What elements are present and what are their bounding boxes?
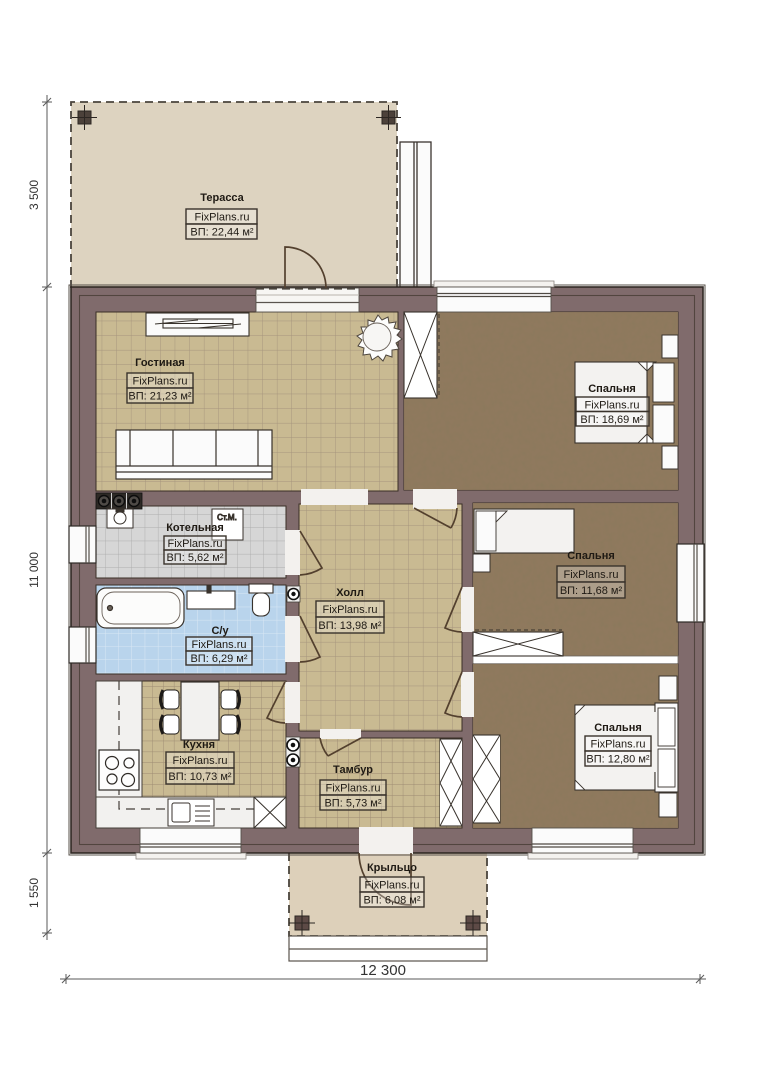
svg-text:12 300: 12 300	[360, 962, 406, 979]
svg-text:FixPlans.ru: FixPlans.ru	[194, 212, 249, 224]
svg-text:ВП: 21,23 м²: ВП: 21,23 м²	[128, 391, 192, 403]
svg-text:ВП: 6,29 м²: ВП: 6,29 м²	[190, 653, 247, 665]
svg-text:Спальня: Спальня	[594, 722, 642, 734]
svg-text:1 550: 1 550	[27, 878, 41, 908]
svg-text:FixPlans.ru: FixPlans.ru	[132, 376, 187, 388]
svg-text:ВП: 6,08 м²: ВП: 6,08 м²	[363, 895, 420, 907]
svg-text:ВП: 11,68 м²: ВП: 11,68 м²	[560, 585, 623, 597]
svg-text:ВП: 18,69 м²: ВП: 18,69 м²	[580, 414, 644, 426]
svg-text:Терасса: Терасса	[200, 192, 244, 204]
svg-text:ВП: 13,98 м²: ВП: 13,98 м²	[318, 620, 382, 632]
svg-text:FixPlans.ru: FixPlans.ru	[590, 739, 645, 751]
svg-text:ВП: 12,80 м²: ВП: 12,80 м²	[586, 754, 650, 766]
svg-text:Тамбур: Тамбур	[333, 764, 373, 776]
svg-text:Спальня: Спальня	[588, 383, 636, 395]
svg-text:Крыльцо: Крыльцо	[367, 862, 417, 874]
svg-text:Спальня: Спальня	[567, 550, 615, 562]
svg-text:С/у: С/у	[211, 625, 229, 637]
svg-text:FixPlans.ru: FixPlans.ru	[325, 783, 380, 795]
svg-text:Ст.М.: Ст.М.	[217, 513, 237, 522]
svg-text:FixPlans.ru: FixPlans.ru	[364, 880, 419, 892]
svg-text:Гостиная: Гостиная	[135, 357, 185, 369]
svg-text:FixPlans.ru: FixPlans.ru	[172, 755, 227, 767]
svg-text:FixPlans.ru: FixPlans.ru	[322, 604, 377, 616]
svg-text:Котельная: Котельная	[166, 522, 224, 534]
svg-text:FixPlans.ru: FixPlans.ru	[191, 639, 246, 651]
svg-text:11 000: 11 000	[27, 552, 41, 588]
svg-text:ВП: 22,44 м²: ВП: 22,44 м²	[190, 227, 254, 239]
svg-text:3 500: 3 500	[27, 180, 41, 210]
svg-text:ВП: 5,73 м²: ВП: 5,73 м²	[324, 798, 381, 810]
svg-text:FixPlans.ru: FixPlans.ru	[563, 569, 618, 581]
svg-text:FixPlans.ru: FixPlans.ru	[167, 538, 222, 550]
svg-text:FixPlans.ru: FixPlans.ru	[584, 400, 639, 412]
svg-text:ВП: 5,62 м²: ВП: 5,62 м²	[166, 552, 223, 564]
svg-text:ВП: 10,73 м²: ВП: 10,73 м²	[168, 771, 232, 783]
svg-text:Кухня: Кухня	[183, 739, 215, 751]
svg-text:Холл: Холл	[336, 587, 364, 599]
